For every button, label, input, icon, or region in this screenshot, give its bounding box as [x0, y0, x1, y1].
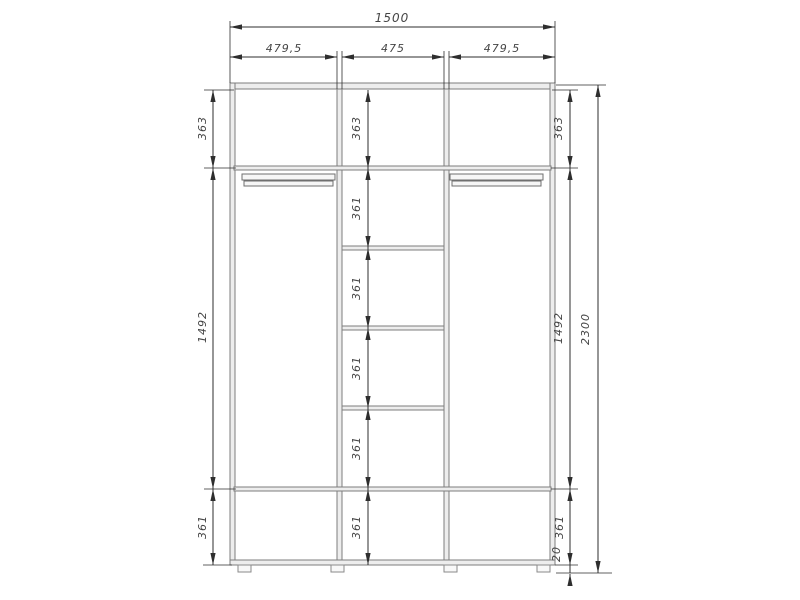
dimension-label-middle-shelf-4: 361 [350, 436, 363, 460]
foot-1 [238, 565, 251, 572]
dimension-label-left-bottom: 361 [196, 515, 209, 539]
dimension-section-widths: 479,5 475 479,5 [230, 42, 555, 89]
foot-3 [444, 565, 457, 572]
rod-tube [452, 181, 541, 186]
middle-shelf-2 [342, 326, 444, 330]
foot-4 [537, 565, 550, 572]
rod-bracket [242, 174, 335, 180]
dimension-label-middle-top: 363 [350, 116, 363, 140]
dimension-label-left-middle: 1492 [196, 311, 209, 343]
drawing-canvas: 1500 479,5 475 479,5 363 1492 361 363 36… [0, 0, 800, 600]
bottom-panel [230, 560, 555, 565]
dimension-label-right-section: 479,5 [484, 42, 521, 55]
dimension-label-middle-shelf-1: 361 [350, 196, 363, 220]
dimension-label-middle-shelf-2: 361 [350, 276, 363, 300]
dimension-label-right-bottom: 361 [553, 515, 566, 539]
rod-tube [244, 181, 333, 186]
cabinet [230, 83, 555, 572]
dimension-label-right-top: 363 [552, 116, 565, 140]
bottom-shelf [234, 487, 551, 491]
dimension-label-total-height: 2300 [579, 313, 592, 345]
dimension-label-left-section: 479,5 [266, 42, 303, 55]
top-panel [230, 83, 555, 89]
left-side-panel [230, 83, 235, 565]
technical-drawing: 1500 479,5 475 479,5 363 1492 361 363 36… [0, 0, 800, 600]
dimension-label-middle-section: 475 [381, 42, 405, 55]
hanging-rod-right [450, 174, 543, 186]
hanging-rod-left [242, 174, 335, 186]
dimension-label-total-width: 1500 [375, 11, 410, 25]
dimension-label-plinth: 20 [550, 546, 563, 562]
dimension-label-middle-shelf-3: 361 [350, 356, 363, 380]
dimension-label-middle-bottom: 361 [350, 515, 363, 539]
middle-shelf-3 [342, 406, 444, 410]
middle-shelf-1 [342, 246, 444, 250]
foot-2 [331, 565, 344, 572]
dimension-label-right-middle: 1492 [552, 312, 565, 344]
dimension-label-left-top: 363 [196, 116, 209, 140]
top-shelf [234, 166, 551, 170]
rod-bracket [450, 174, 543, 180]
